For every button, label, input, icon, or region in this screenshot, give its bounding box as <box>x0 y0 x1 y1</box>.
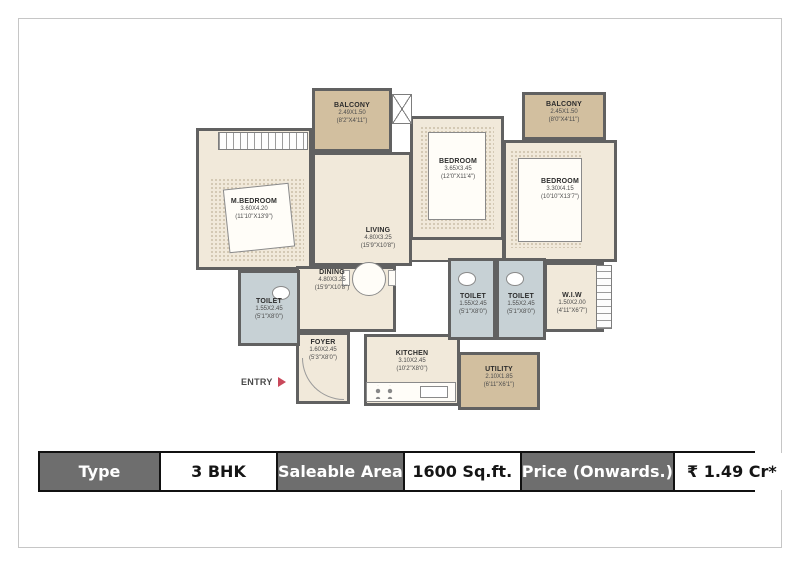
room-dim-ft: (11'10"X13'9") <box>214 214 294 222</box>
room-dim-ft: (8'2"X4'11") <box>312 118 392 126</box>
spec-cell-area-header: Saleable Area <box>278 453 405 490</box>
label-toilet-middle-2: TOILET 1.55X2.45 (5'1"X8'0") <box>494 292 548 317</box>
room-name: BALCONY <box>524 100 604 109</box>
room-dim-ft: (15'9"X10'8") <box>298 285 366 293</box>
room-name: TOILET <box>494 292 548 301</box>
room-dim-m: 2.49X1.50 <box>312 110 392 118</box>
room-name: LIVING <box>338 226 418 235</box>
room-name: KITCHEN <box>370 349 454 358</box>
spec-cell-price-header: Price (Onwards.) <box>522 453 675 490</box>
room-name: BEDROOM <box>418 157 498 166</box>
room-dim-ft: (5'1"X8'0") <box>238 314 300 322</box>
room-name: W.I.W <box>542 291 602 300</box>
room-name: BALCONY <box>312 101 392 110</box>
spec-cell-area-value: 1600 Sq.ft. <box>405 453 522 490</box>
label-bedroom-middle: BEDROOM 3.65X3.45 (12'0"X11'4") <box>418 157 498 182</box>
room-dim-m: 2.45X1.50 <box>524 109 604 117</box>
room-dim-m: 4.80X3.25 <box>298 277 366 285</box>
label-toilet-left: TOILET 1.55X2.45 (5'1"X8'0") <box>238 297 300 322</box>
toilet-icon <box>458 272 476 286</box>
room-dim-ft: (10'2"X8'0") <box>370 366 454 374</box>
room-dim-ft: (4'11"X6'7") <box>542 308 602 316</box>
label-toilet-middle-1: TOILET 1.55X2.45 (5'1"X8'0") <box>446 292 500 317</box>
room-dim-m: 3.10X2.45 <box>370 358 454 366</box>
room-dim-ft: (6'11"X6'1") <box>460 382 538 390</box>
spec-table: Type 3 BHK Saleable Area 1600 Sq.ft. Pri… <box>38 451 755 492</box>
spec-cell-type-header: Type <box>40 453 161 490</box>
label-bedroom-right: BEDROOM 3.30X4.15 (10'10"X13'7") <box>520 177 600 202</box>
room-dim-m: 1.55X2.45 <box>494 301 548 309</box>
label-balcony-left: BALCONY 2.49X1.50 (8'2"X4'11") <box>312 101 392 126</box>
wardrobe-icon <box>218 132 308 150</box>
room-dim-m: 1.60X2.45 <box>298 347 348 355</box>
label-kitchen: KITCHEN 3.10X2.45 (10'2"X8'0") <box>370 349 454 374</box>
toilet-icon <box>506 272 524 286</box>
room-dim-m: 3.30X4.15 <box>520 186 600 194</box>
room-dim-m: 4.80X3.25 <box>338 235 418 243</box>
chair-icon <box>388 270 396 286</box>
room-name: UTILITY <box>460 365 538 374</box>
room-dim-ft: (5'1"X8'0") <box>494 309 548 317</box>
spec-cell-type-value: 3 BHK <box>161 453 278 490</box>
entry-marker: ENTRY <box>241 377 286 387</box>
room-dim-m: 2.10X1.85 <box>460 374 538 382</box>
room-dim-ft: (5'1"X8'0") <box>446 309 500 317</box>
room-dim-ft: (15'9"X10'8") <box>338 243 418 251</box>
room-dim-ft: (8'0"X4'11") <box>524 117 604 125</box>
room-name: DINING <box>298 268 366 277</box>
room-name: FOYER <box>298 338 348 347</box>
page: BALCONY 2.49X1.50 (8'2"X4'11") BALCONY 2… <box>0 0 800 566</box>
entry-label: ENTRY <box>241 377 273 387</box>
entry-arrow-icon <box>278 377 286 387</box>
hob-icon <box>370 385 396 399</box>
label-utility: UTILITY 2.10X1.85 (6'11"X6'1") <box>460 365 538 390</box>
room-dim-m: 1.55X2.45 <box>446 301 500 309</box>
label-balcony-right: BALCONY 2.45X1.50 (8'0"X4'11") <box>524 100 604 125</box>
room-name: M.BEDROOM <box>214 197 294 206</box>
room-dim-m: 3.65X3.45 <box>418 166 498 174</box>
room-dim-ft: (5'3"X8'0") <box>298 355 348 363</box>
label-living: LIVING 4.80X3.25 (15'9"X10'8") <box>338 226 418 251</box>
room-dim-m: 1.50X2.00 <box>542 300 602 308</box>
room-dim-m: 3.60X4.20 <box>214 206 294 214</box>
spec-cell-price-value: ₹ 1.49 Cr* <box>675 453 789 490</box>
room-name: BEDROOM <box>520 177 600 186</box>
room-name: TOILET <box>238 297 300 306</box>
room-dim-ft: (10'10"X13'7") <box>520 194 600 202</box>
room-dim-m: 1.55X2.45 <box>238 306 300 314</box>
label-master-bedroom: M.BEDROOM 3.60X4.20 (11'10"X13'9") <box>214 197 294 222</box>
label-walk-in-wardrobe: W.I.W 1.50X2.00 (4'11"X6'7") <box>542 291 602 316</box>
sink-icon <box>420 386 448 398</box>
label-foyer: FOYER 1.60X2.45 (5'3"X8'0") <box>298 338 348 363</box>
duct-shaft-icon <box>392 94 412 124</box>
room-name: TOILET <box>446 292 500 301</box>
label-dining: DINING 4.80X3.25 (15'9"X10'8") <box>298 268 366 293</box>
room-dim-ft: (12'0"X11'4") <box>418 174 498 182</box>
